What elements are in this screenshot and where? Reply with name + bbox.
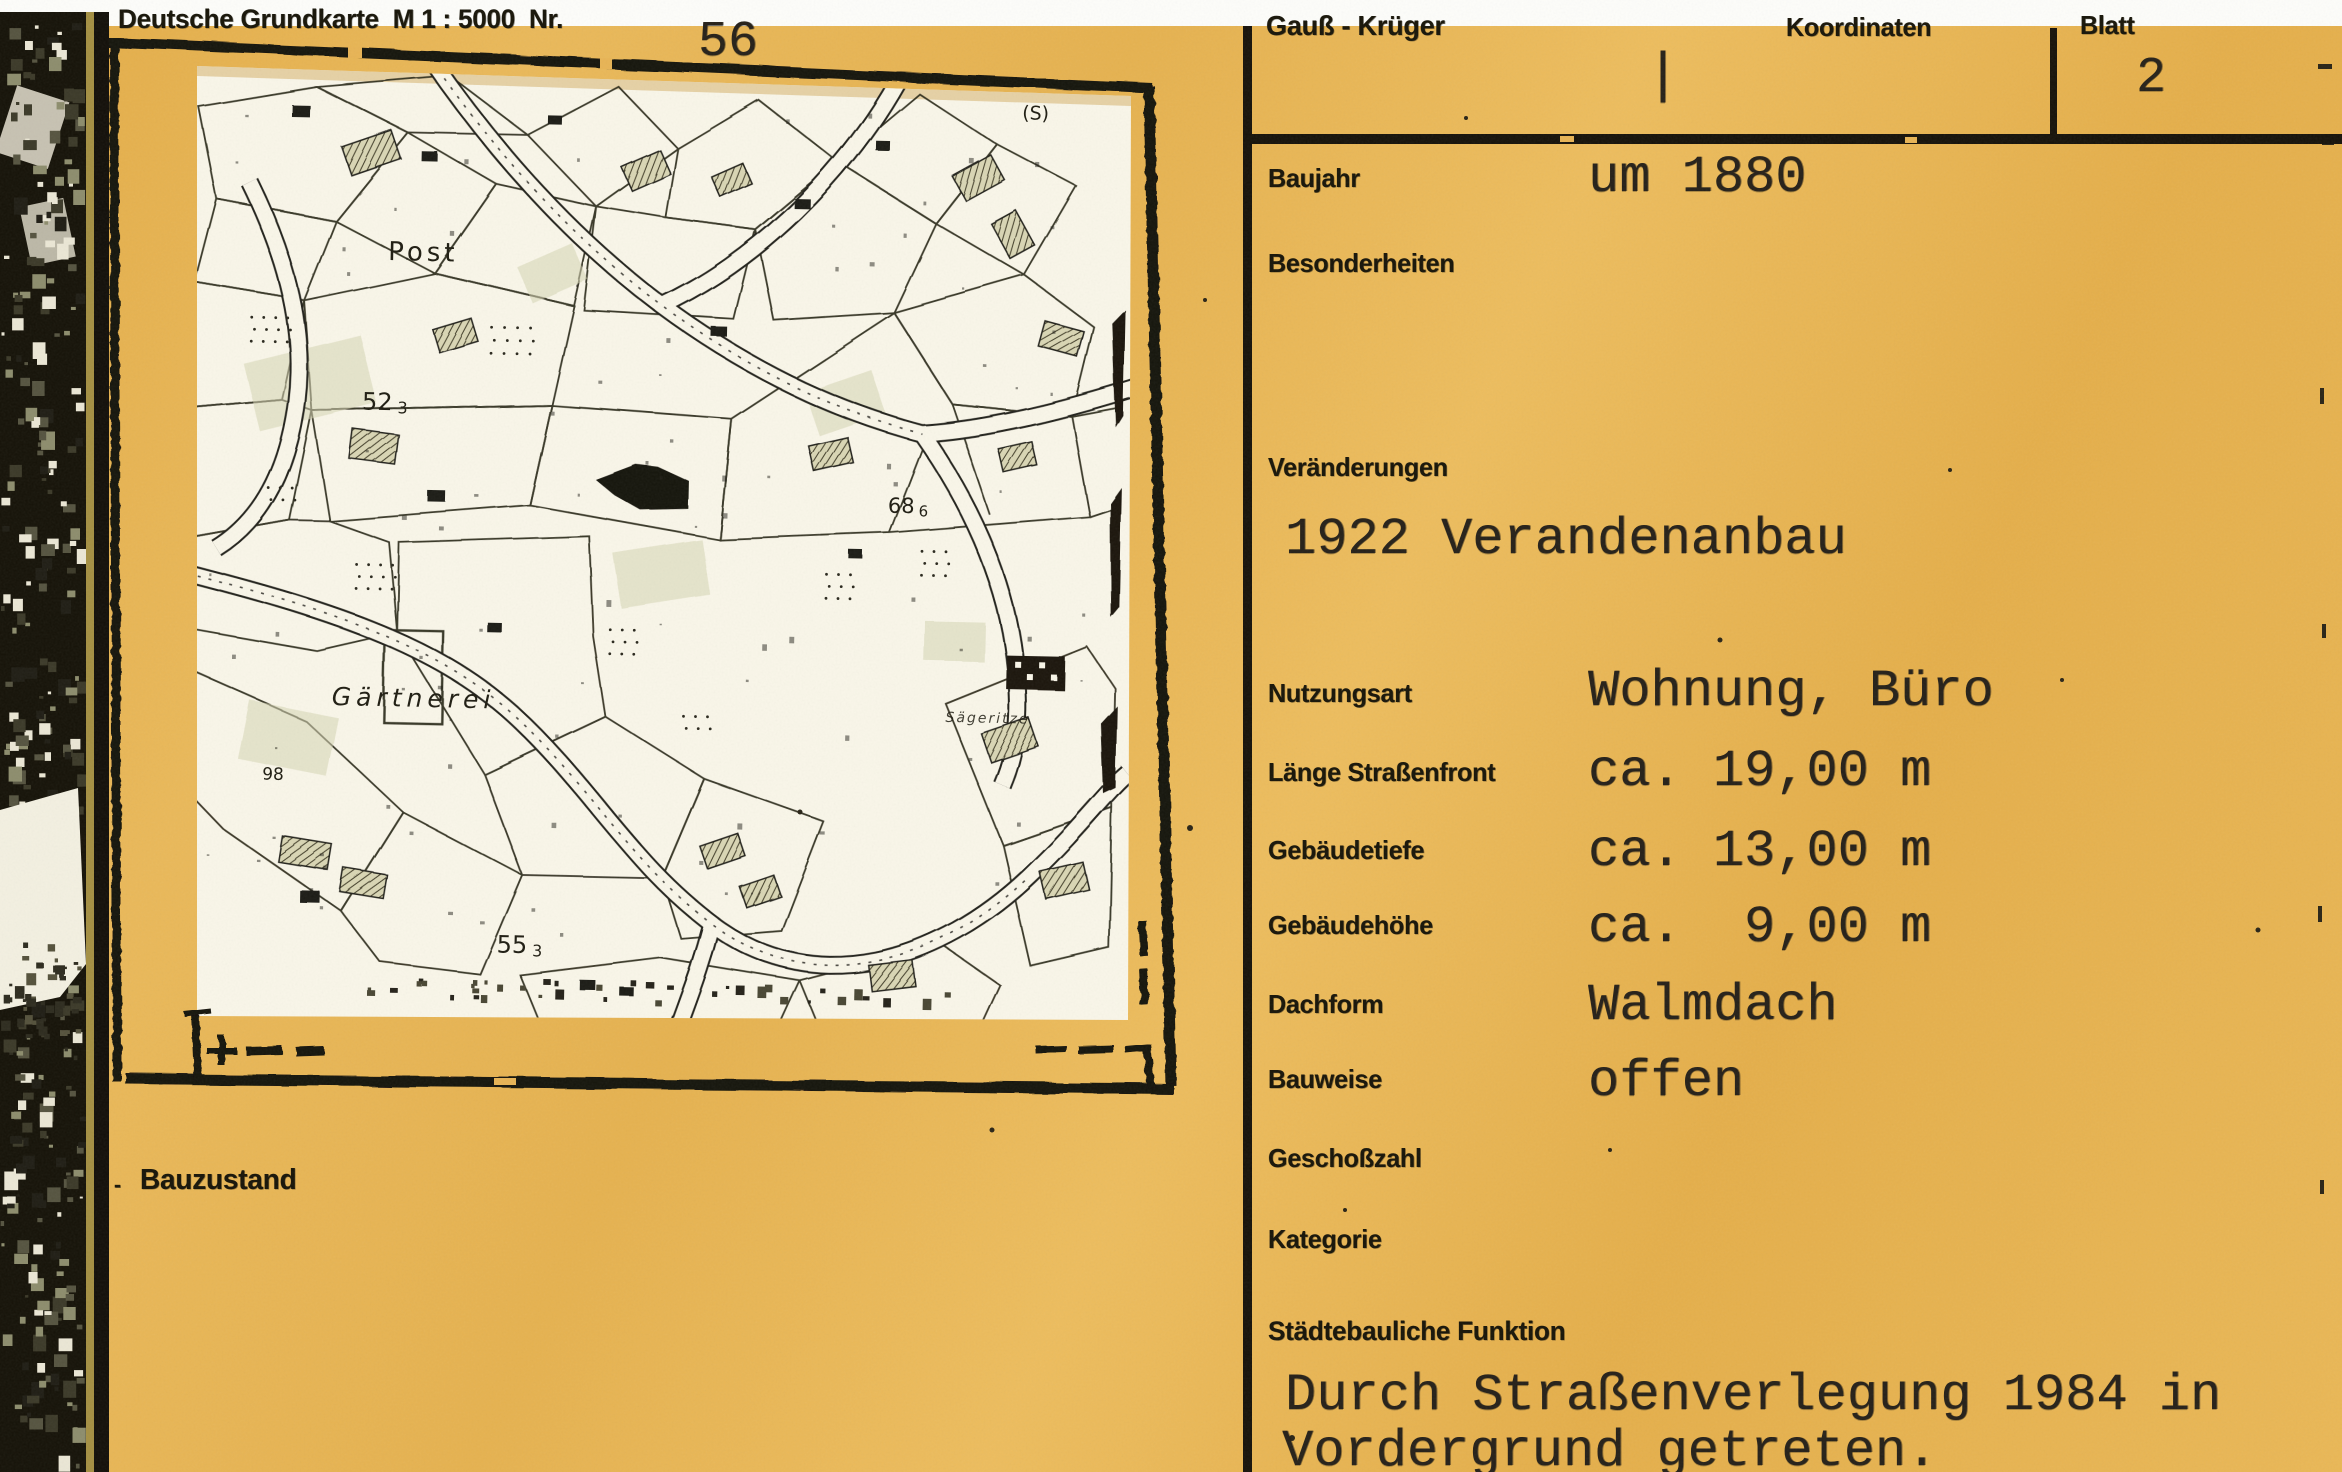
field-value-dachform: Walmdach [1588,976,1838,1035]
field-label-baujahr: Baujahr [1268,163,1360,194]
map-label-98: 98 [262,765,284,785]
sheet-boundary-corner [1126,1048,1151,1088]
blatt-cell-divider [2050,28,2057,140]
grundkarte-header: Deutsche Grundkarte M 1 : 5000 Nr. [118,4,563,35]
bauzustand-dash: - [114,1172,121,1198]
field-value-bauweise: offen [1588,1052,1744,1111]
frame-cross-mark [207,1036,237,1066]
strip-white-band [0,788,86,1010]
field-label-nutzungsart: Nutzungsart [1268,678,1412,709]
field-label-gebaeudehoehe: Gebäudehöhe [1268,910,1433,941]
gauss-krueger-label: Gauß - Krüger [1266,10,1445,42]
blatt-number: 2 [2136,50,2166,107]
frame-dashes-left [246,1050,324,1052]
panel-divider-line [1243,26,1252,1472]
field-label-besonderheiten: Besonderheiten [1268,248,1455,279]
map-label-s-mark: (S) [1022,102,1049,125]
field-value-funktion-line2: Vordergrund getreten. [1282,1422,1937,1472]
field-value-veraenderungen: 1922 Verandenanbau [1285,510,1847,569]
field-value-funktion-line1: Durch Straßenverlegung 1984 in [1285,1366,2221,1425]
line-nick [1905,137,1917,143]
blatt-label: Blatt [2080,10,2135,41]
field-value-gebaeudetiefe: ca. 13,00 m [1588,822,1931,881]
field-value-laenge-strassenfront: ca. 19,00 m [1588,742,1931,801]
field-value-gebaeudehoehe: ca. 9,00 m [1588,898,1931,957]
field-label-kategorie: Kategorie [1268,1224,1382,1255]
field-label-laenge-strassenfront: Länge Straßenfront [1268,757,1495,788]
sheet-boundary-dashes [1142,920,1145,1006]
grundkarte-sheet-number: 56 [698,14,758,71]
map-label-gaertnerei: Gärtnerei [332,682,496,714]
field-value-nutzungsart: Wohnung, Büro [1588,662,1994,721]
photo-strip-scan-edge [0,12,112,1472]
field-label-staedtebauliche-funktion: Städtebauliche Funktion [1268,1316,1565,1347]
frame-dashes-right [1036,1049,1114,1050]
field-label-bauweise: Bauweise [1268,1064,1382,1095]
field-label-veraenderungen: Veränderungen [1268,452,1448,483]
map-label-street: Sägeritze [945,710,1029,728]
map-and-frame-layer: Post 523 Gärtnerei 98 553 686 (S) Sägeri… [0,0,2342,1472]
bauzustand-label: Bauzustand [140,1164,297,1197]
line-nick [1560,136,1574,142]
field-label-gebaeudetiefe: Gebäudetiefe [1268,835,1424,866]
field-value-baujahr: um 1880 [1588,148,1806,207]
koordinaten-label: Koordinaten [1786,12,1931,43]
scanned-building-record-card: Post 523 Gärtnerei 98 553 686 (S) Sägeri… [0,0,2342,1472]
coordinate-tick-mark: | [1646,44,1680,108]
field-label-geschosszahl: Geschoßzahl [1268,1143,1422,1174]
header-underline [1247,134,2342,144]
map-label-post: Post [388,237,459,268]
field-label-dachform: Dachform [1268,989,1383,1020]
